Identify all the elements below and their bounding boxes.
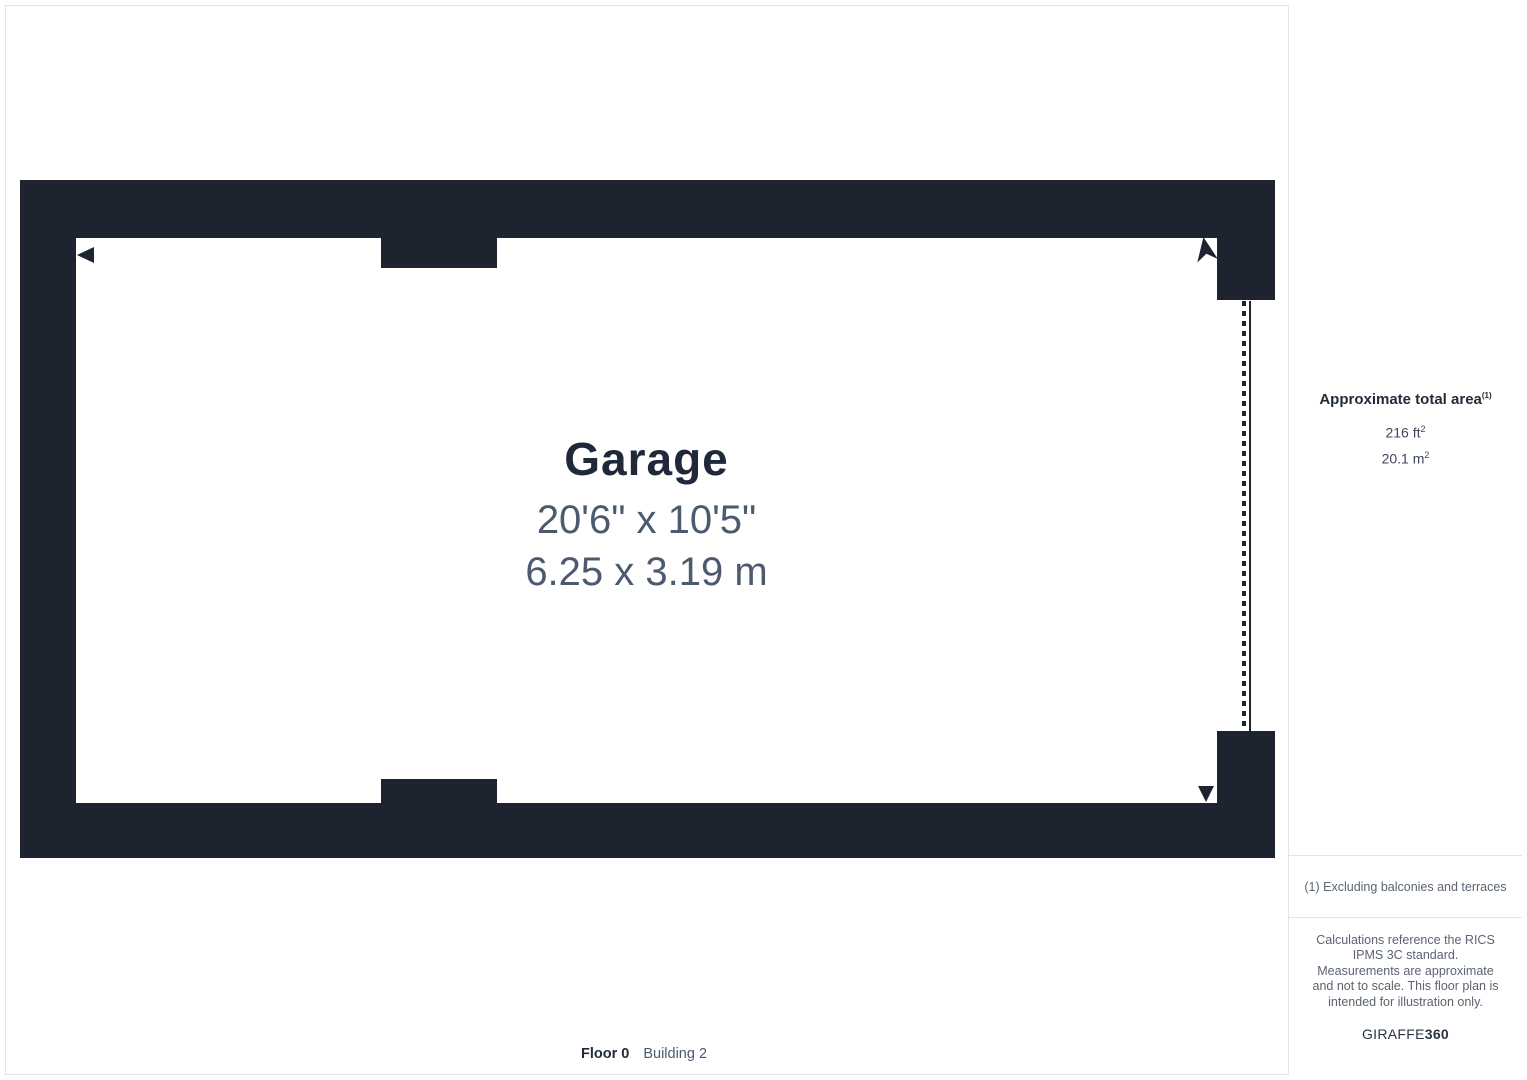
area-imperial-exponent: 2 (1421, 424, 1426, 434)
room-label: Garage 20'6" x 10'5" 6.25 x 3.19 m (76, 432, 1217, 598)
info-sidebar: Approximate total area(1) 216 ft2 20.1 m… (1288, 5, 1522, 1075)
garage-door-solid-line (1249, 301, 1251, 731)
room-dimensions-metric: 6.25 x 3.19 m (76, 546, 1217, 598)
brand-prefix: GIRAFFE (1362, 1026, 1425, 1042)
building-label: Building 2 (643, 1046, 707, 1062)
area-summary-title: Approximate total area(1) (1319, 391, 1491, 408)
area-imperial-value: 216 ft (1385, 425, 1420, 441)
area-summary-section: Approximate total area(1) 216 ft2 20.1 m… (1289, 5, 1522, 855)
area-metric-value: 20.1 m (1382, 450, 1425, 466)
camera-arrow-down-icon (1198, 786, 1214, 802)
room-dimensions-imperial: 20'6" x 10'5" (76, 494, 1217, 546)
footnote-section: (1) Excluding balconies and terraces (1289, 855, 1522, 917)
garage-door-opening (1217, 300, 1275, 731)
area-metric: 20.1 m2 (1382, 444, 1430, 470)
area-metric-exponent: 2 (1424, 450, 1429, 460)
floor-number-label: Floor 0 (581, 1046, 629, 1062)
area-summary-title-text: Approximate total area (1319, 391, 1482, 408)
brand-suffix: 360 (1425, 1026, 1449, 1042)
wall-pillar-top (381, 238, 497, 268)
room-name: Garage (76, 432, 1217, 486)
disclaimer-text: Calculations reference the RICS IPMS 3C … (1311, 933, 1500, 1011)
area-title-footnote-ref: (1) (1482, 391, 1492, 400)
garage-door-dashed-line (1242, 301, 1246, 731)
floor-plan: Garage 20'6" x 10'5" 6.25 x 3.19 m (20, 180, 1275, 858)
camera-arrow-left-icon (77, 247, 94, 263)
area-imperial: 216 ft2 (1385, 418, 1425, 444)
disclaimer-section: Calculations reference the RICS IPMS 3C … (1289, 917, 1522, 1075)
floor-building-label: Floor 0Building 2 (0, 1046, 1288, 1062)
footnote-text: (1) Excluding balconies and terraces (1304, 880, 1506, 894)
wall-pillar-bottom (381, 779, 497, 803)
giraffe360-logo: GIRAFFE360 (1362, 1026, 1449, 1042)
